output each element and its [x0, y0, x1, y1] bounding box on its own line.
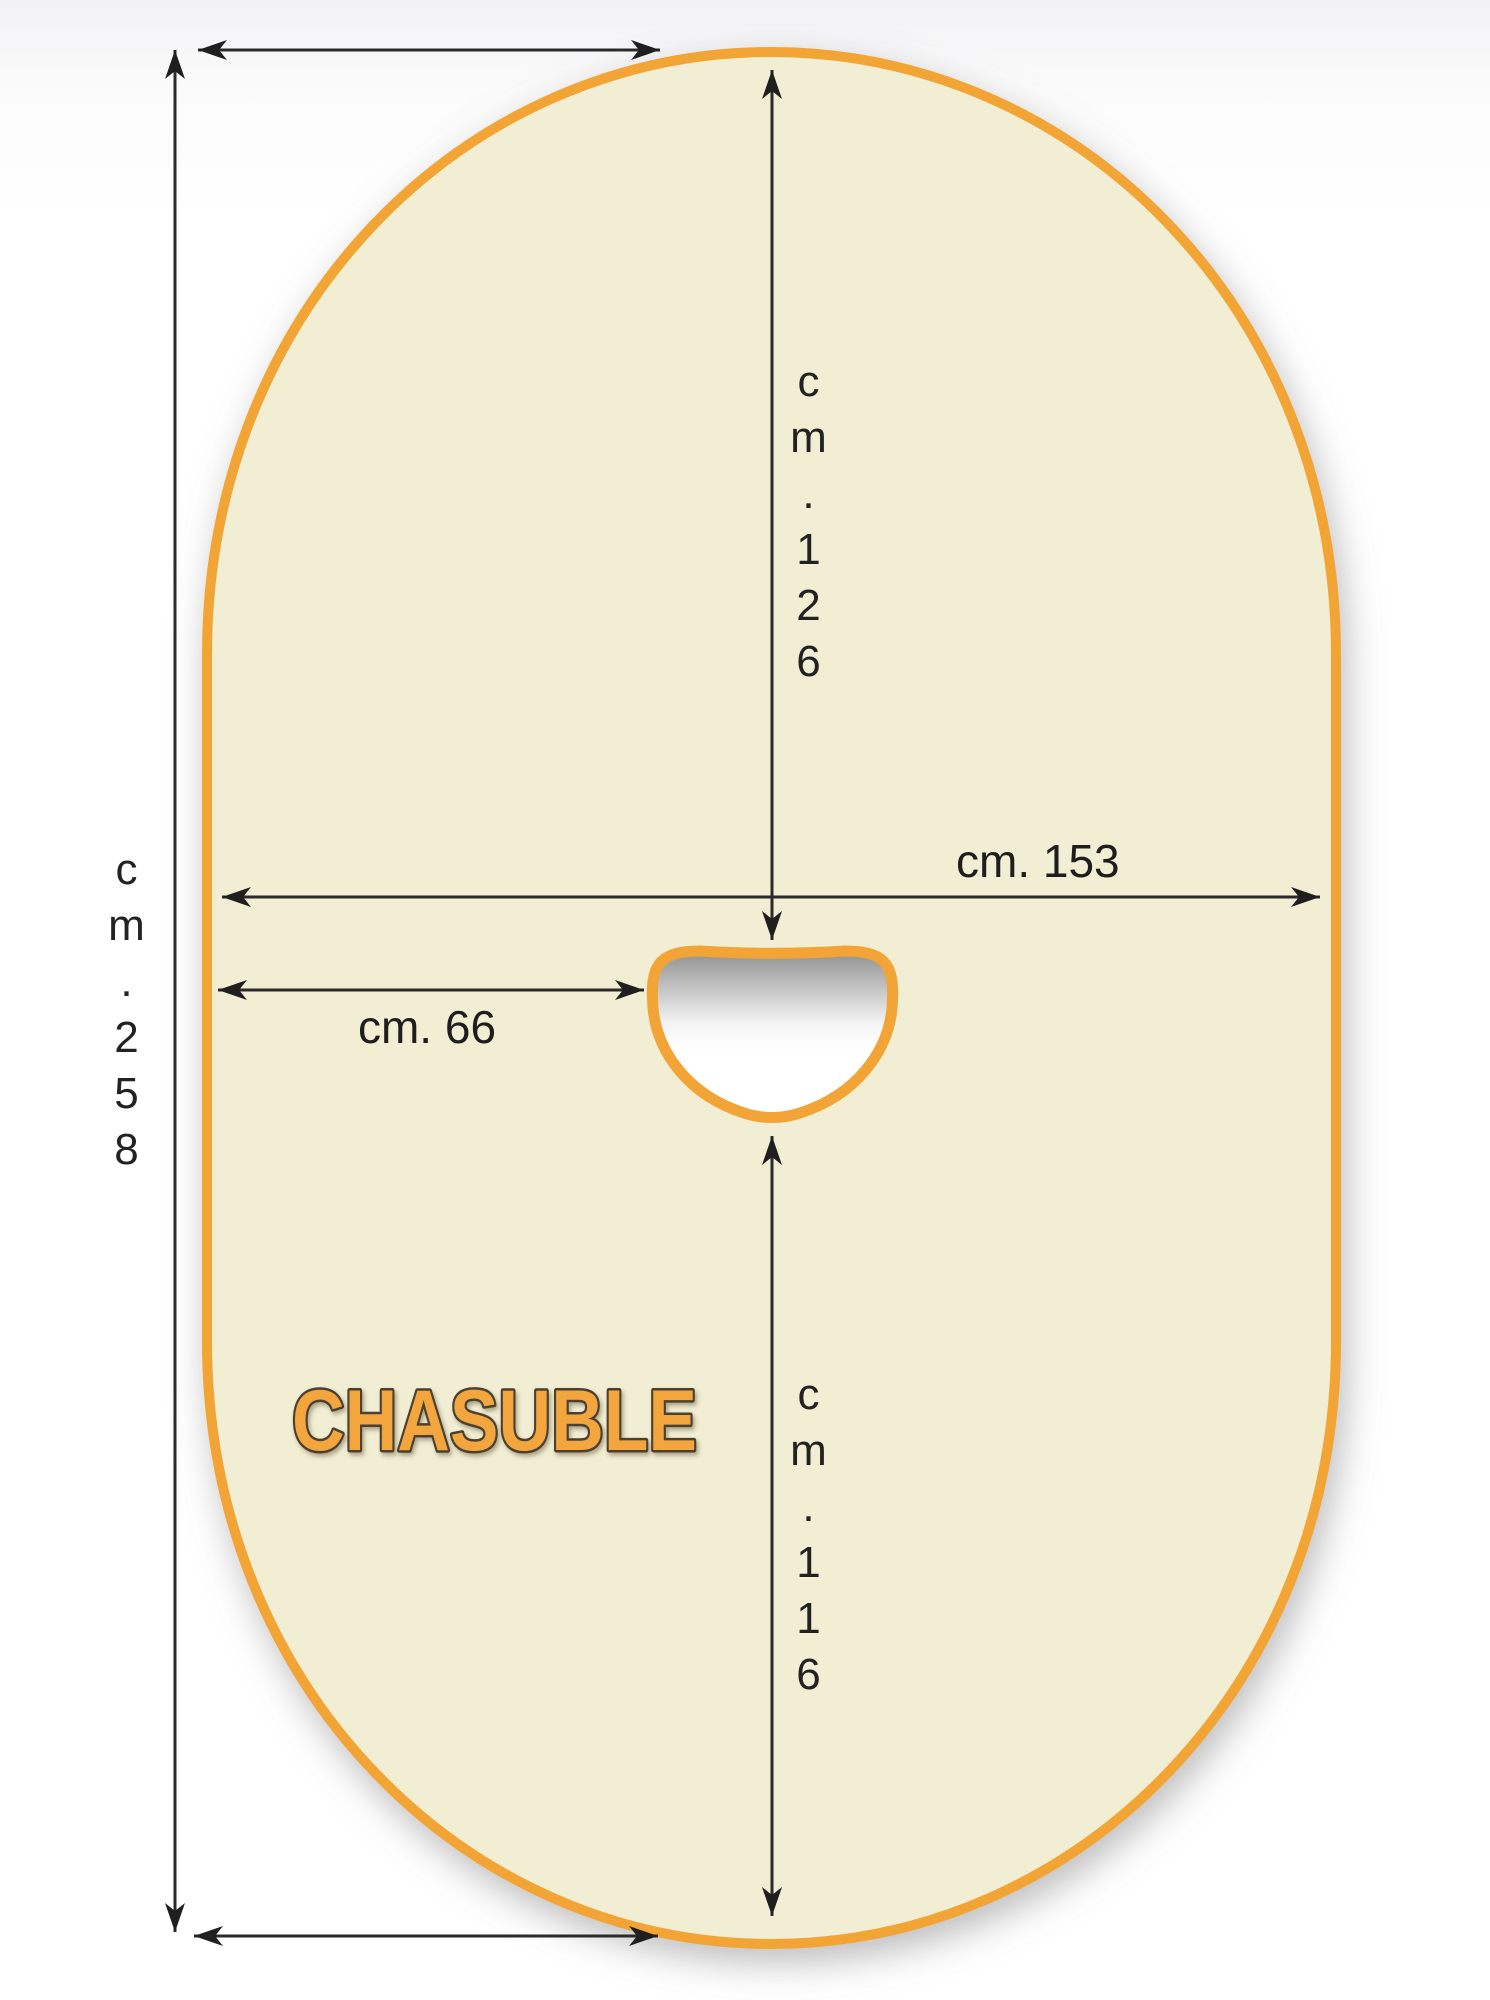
diagram-canvas: CHASUBLE	[0, 0, 1490, 2000]
dim-label-neck-to-hem: cm.116	[786, 1370, 830, 1706]
dim-label-total-height: cm.258	[104, 845, 148, 1181]
pattern-name-label: CHASUBLE	[292, 1373, 697, 1469]
dim-label-top-to-neck: cm.126	[786, 357, 830, 693]
dim-label-neck-offset: cm. 66	[358, 1001, 496, 1054]
dim-label-width: cm. 153	[956, 835, 1120, 888]
chasuble-pattern-diagram: CHASUBLE cm.258 cm.126 cm. 153 cm. 66 cm…	[0, 0, 1490, 2000]
